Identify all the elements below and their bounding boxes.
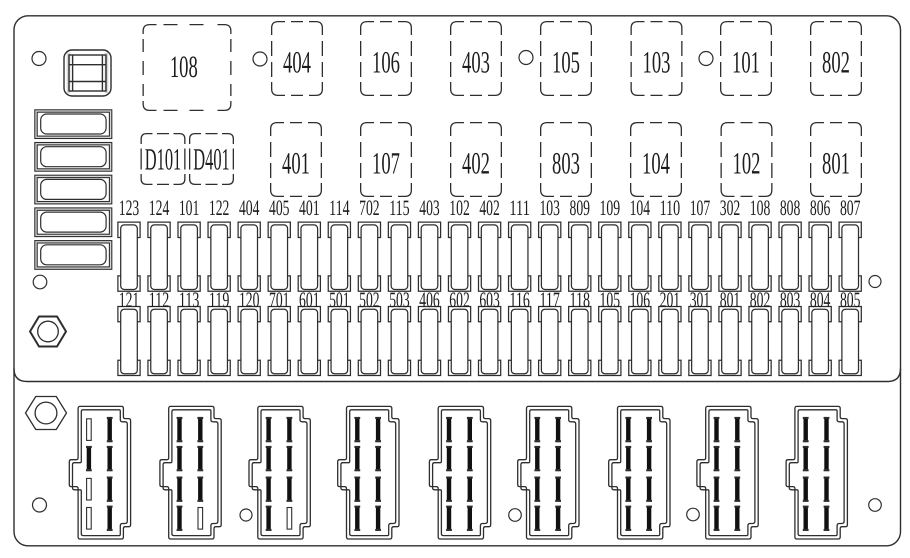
svg-text:104: 104 [630,195,651,220]
svg-text:401: 401 [299,195,320,220]
svg-text:107: 107 [690,195,711,220]
svg-text:108: 108 [750,195,771,220]
svg-text:107: 107 [372,146,400,181]
svg-text:402: 402 [462,146,490,181]
svg-text:804: 804 [810,287,831,312]
svg-text:103: 103 [539,195,560,220]
svg-text:102: 102 [449,195,470,220]
svg-text:114: 114 [329,195,350,220]
svg-text:122: 122 [209,195,230,220]
svg-text:807: 807 [840,195,861,220]
svg-text:105: 105 [600,287,621,312]
svg-text:110: 110 [660,195,681,220]
svg-text:502: 502 [359,287,380,312]
svg-text:116: 116 [509,287,530,312]
svg-text:106: 106 [372,45,400,80]
svg-text:503: 503 [389,287,410,312]
svg-text:405: 405 [269,195,290,220]
svg-text:809: 809 [570,195,591,220]
svg-text:123: 123 [119,195,140,220]
svg-text:801: 801 [822,146,850,181]
svg-text:D401: D401 [193,142,230,177]
svg-text:118: 118 [570,287,591,312]
svg-text:124: 124 [149,195,170,220]
svg-text:101: 101 [732,45,760,80]
svg-text:802: 802 [822,45,850,80]
svg-text:803: 803 [780,287,801,312]
svg-text:808: 808 [780,195,801,220]
svg-text:301: 301 [690,287,711,312]
svg-text:101: 101 [179,195,200,220]
svg-text:806: 806 [810,195,831,220]
svg-text:201: 201 [660,287,681,312]
svg-text:102: 102 [733,146,761,181]
svg-text:402: 402 [479,195,500,220]
svg-text:404: 404 [239,195,260,220]
svg-text:401: 401 [282,146,310,181]
svg-text:802: 802 [750,287,771,312]
svg-text:403: 403 [419,195,440,220]
svg-text:404: 404 [283,45,311,80]
svg-text:104: 104 [642,146,670,181]
svg-text:112: 112 [149,287,170,312]
svg-text:117: 117 [539,287,560,312]
svg-text:115: 115 [389,195,410,220]
svg-text:406: 406 [419,287,440,312]
svg-text:113: 113 [179,287,200,312]
svg-text:501: 501 [329,287,350,312]
svg-text:603: 603 [479,287,500,312]
svg-text:302: 302 [720,195,741,220]
svg-text:702: 702 [359,195,380,220]
svg-text:119: 119 [209,287,230,312]
svg-text:D101: D101 [145,142,182,177]
svg-text:106: 106 [630,287,651,312]
svg-text:108: 108 [170,49,198,84]
svg-text:105: 105 [552,45,580,80]
svg-text:602: 602 [449,287,470,312]
svg-text:109: 109 [600,195,621,220]
svg-text:403: 403 [462,45,490,80]
svg-text:701: 701 [269,287,290,312]
svg-text:805: 805 [840,287,861,312]
svg-text:601: 601 [299,287,320,312]
svg-text:803: 803 [552,146,580,181]
svg-text:111: 111 [509,195,530,220]
svg-text:801: 801 [720,287,741,312]
svg-text:121: 121 [119,287,140,312]
svg-text:120: 120 [239,287,260,312]
svg-text:103: 103 [643,45,671,80]
